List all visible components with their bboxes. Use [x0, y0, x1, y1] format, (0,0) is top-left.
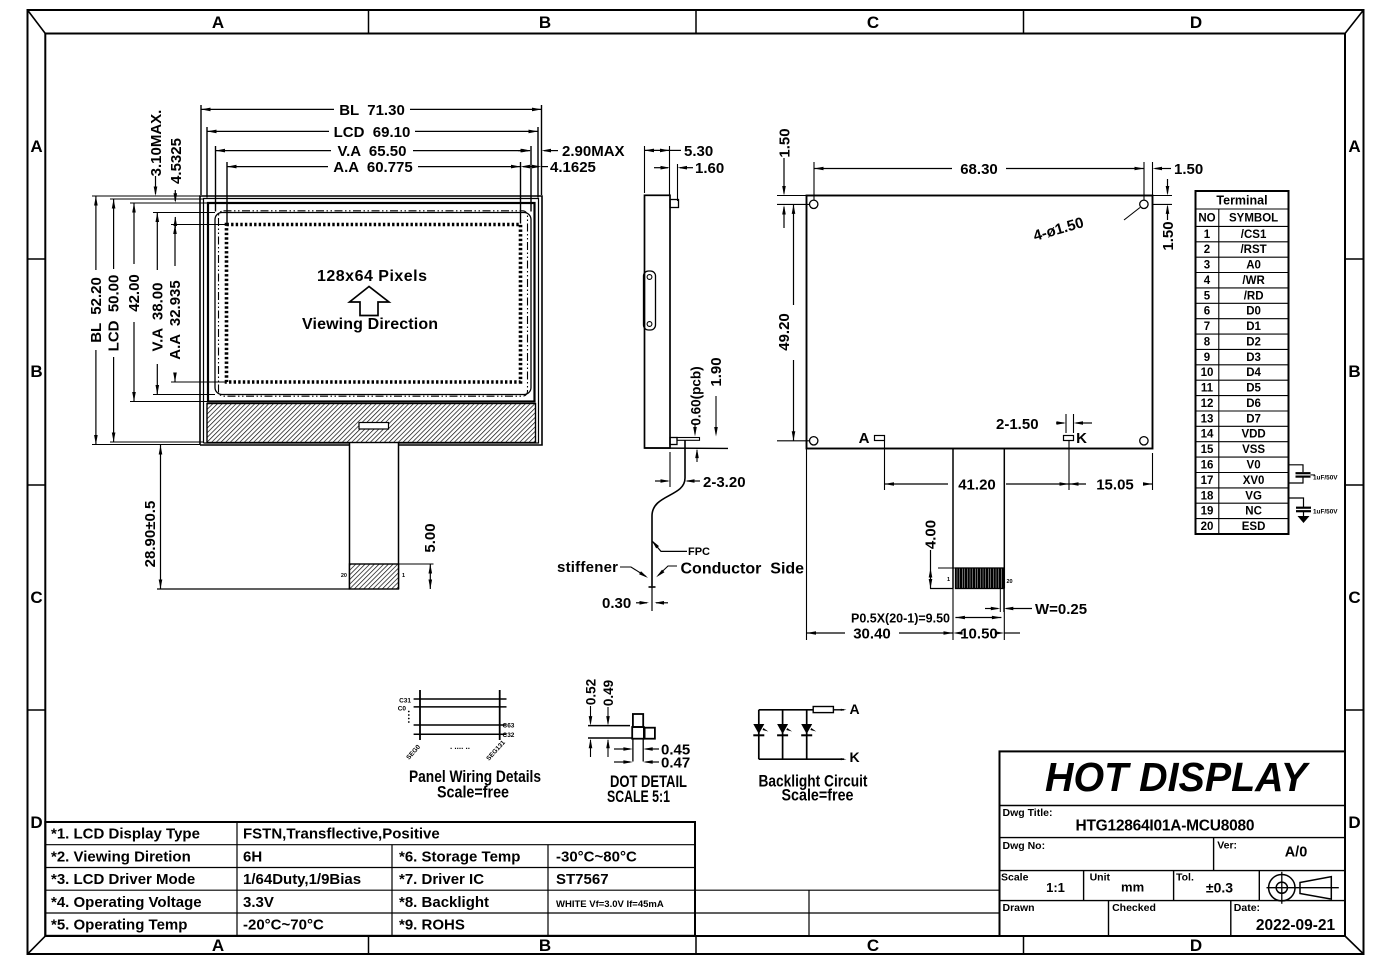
- svg-text:C31: C31: [399, 698, 411, 705]
- svg-text:Scale=free: Scale=free: [437, 784, 509, 802]
- svg-text:V.A 65.50: V.A 65.50: [338, 143, 407, 160]
- svg-text:10: 10: [1201, 367, 1214, 379]
- svg-text:LCD 69.10: LCD 69.10: [334, 124, 411, 141]
- svg-text:BL 71.30: BL 71.30: [339, 102, 405, 119]
- svg-text:ESD: ESD: [1242, 521, 1266, 533]
- svg-text:2: 2: [1204, 244, 1210, 256]
- svg-text:A: A: [850, 701, 860, 717]
- svg-text:B: B: [539, 936, 551, 955]
- svg-text:Scale: Scale: [1001, 872, 1029, 884]
- svg-text:11: 11: [1201, 383, 1214, 395]
- svg-text:±0.3: ±0.3: [1206, 880, 1233, 896]
- svg-text:1:1: 1:1: [1046, 880, 1065, 895]
- svg-text:7: 7: [1204, 321, 1210, 333]
- svg-text:19: 19: [1201, 506, 1214, 518]
- svg-text:13: 13: [1201, 413, 1214, 425]
- svg-text:0.49: 0.49: [601, 680, 616, 706]
- svg-text:FPC: FPC: [688, 546, 710, 558]
- svg-text:5: 5: [1204, 290, 1211, 302]
- svg-text:A: A: [30, 137, 42, 156]
- svg-text:41.20: 41.20: [958, 477, 996, 494]
- svg-text:D2: D2: [1246, 336, 1261, 348]
- svg-text:-30°C~80°C: -30°C~80°C: [556, 848, 637, 865]
- svg-text:Terminal: Terminal: [1216, 194, 1267, 208]
- svg-text:1.50: 1.50: [776, 128, 793, 157]
- svg-text:K: K: [1076, 430, 1087, 447]
- svg-text:Scale=free: Scale=free: [782, 787, 854, 805]
- svg-text:C: C: [30, 588, 42, 607]
- svg-text:D4: D4: [1246, 367, 1261, 379]
- svg-text:Checked: Checked: [1112, 902, 1156, 914]
- svg-text:. .... ..: . .... ..: [450, 742, 470, 751]
- svg-text:mm: mm: [1121, 880, 1144, 895]
- svg-text:stiffener: stiffener: [557, 559, 618, 576]
- svg-text:*2. Viewing Diretion: *2. Viewing Diretion: [51, 848, 191, 865]
- svg-text:C: C: [1348, 588, 1360, 607]
- svg-text:9: 9: [1204, 352, 1210, 364]
- svg-text:4.1625: 4.1625: [550, 159, 596, 176]
- svg-text:W=0.25: W=0.25: [1035, 601, 1087, 618]
- svg-text:2.90MAX: 2.90MAX: [562, 143, 625, 160]
- svg-text:D: D: [1348, 813, 1360, 832]
- svg-text:*9. ROHS: *9. ROHS: [399, 917, 465, 934]
- svg-text:C: C: [867, 13, 879, 32]
- svg-text:D7: D7: [1246, 413, 1261, 425]
- svg-text:5.30: 5.30: [684, 143, 713, 160]
- svg-text:A: A: [1348, 137, 1360, 156]
- svg-text:5.00: 5.00: [422, 523, 439, 552]
- svg-text:1.50: 1.50: [1160, 221, 1177, 250]
- svg-text:Tol.: Tol.: [1176, 872, 1194, 884]
- svg-text:Viewing Direction: Viewing Direction: [302, 316, 438, 333]
- svg-text:D: D: [1190, 936, 1202, 955]
- svg-text:NO: NO: [1198, 213, 1215, 225]
- svg-text:8: 8: [1204, 336, 1211, 348]
- svg-text:20: 20: [1007, 579, 1013, 585]
- svg-text:128x64 Pixels: 128x64 Pixels: [317, 268, 427, 285]
- svg-text:*7. Driver IC: *7. Driver IC: [399, 871, 484, 888]
- svg-text:HOT DISPLAY: HOT DISPLAY: [1045, 754, 1311, 800]
- svg-text:WHITE Vf=3.0V If=45mA: WHITE Vf=3.0V If=45mA: [556, 899, 664, 910]
- svg-text:D5: D5: [1246, 383, 1261, 395]
- svg-text:1uF/50V: 1uF/50V: [1313, 509, 1338, 516]
- svg-text:16: 16: [1201, 460, 1214, 472]
- svg-text:28.90±0.5: 28.90±0.5: [142, 501, 159, 568]
- svg-text:D1: D1: [1246, 321, 1261, 333]
- svg-text:-20°C~70°C: -20°C~70°C: [243, 917, 324, 934]
- svg-text:2-1.50: 2-1.50: [996, 416, 1039, 433]
- svg-text:A: A: [212, 13, 224, 32]
- svg-text:20: 20: [1201, 521, 1214, 533]
- svg-text:49.20: 49.20: [776, 313, 793, 351]
- svg-text:V0: V0: [1247, 460, 1261, 472]
- svg-text:1/64Duty,1/9Bias: 1/64Duty,1/9Bias: [243, 871, 361, 888]
- svg-text:1.50: 1.50: [1174, 161, 1203, 178]
- svg-text:VSS: VSS: [1242, 444, 1265, 456]
- svg-text:3.3V: 3.3V: [243, 894, 274, 911]
- svg-text:A: A: [859, 430, 870, 447]
- svg-text:30.40: 30.40: [853, 626, 891, 643]
- svg-text:C: C: [867, 936, 879, 955]
- svg-text:/WR: /WR: [1242, 275, 1265, 287]
- svg-text:15: 15: [1201, 444, 1214, 456]
- svg-text:A/0: A/0: [1285, 845, 1308, 861]
- svg-text:0.52: 0.52: [584, 679, 599, 705]
- svg-text:B: B: [539, 13, 551, 32]
- svg-text:VDD: VDD: [1241, 429, 1265, 441]
- svg-text:SYMBOL: SYMBOL: [1229, 213, 1278, 225]
- svg-text:Date:: Date:: [1234, 902, 1260, 914]
- svg-text:Dwg Title:: Dwg Title:: [1003, 807, 1053, 819]
- svg-text:1.60: 1.60: [695, 160, 724, 177]
- svg-text:15.05: 15.05: [1096, 477, 1134, 494]
- svg-text:10.50: 10.50: [960, 626, 998, 643]
- svg-text:NC: NC: [1245, 506, 1262, 518]
- svg-text:*8. Backlight: *8. Backlight: [399, 894, 489, 911]
- svg-text:C0: C0: [398, 706, 407, 713]
- svg-text:*1. LCD Display Type: *1. LCD Display Type: [51, 826, 200, 843]
- svg-text:FSTN,Transflective,Positive: FSTN,Transflective,Positive: [243, 826, 440, 843]
- svg-text:12: 12: [1201, 398, 1214, 410]
- svg-text:V.A 38.00: V.A 38.00: [149, 283, 166, 352]
- svg-text:P0.5X(20-1)=9.50: P0.5X(20-1)=9.50: [851, 612, 950, 626]
- svg-text:Conductor Side: Conductor Side: [681, 561, 805, 578]
- svg-text:K: K: [850, 749, 860, 765]
- svg-text:3: 3: [1204, 260, 1210, 272]
- svg-text:17: 17: [1201, 475, 1214, 487]
- svg-text:Dwg No:: Dwg No:: [1003, 840, 1046, 852]
- svg-text:D: D: [1190, 13, 1202, 32]
- svg-text:HTG12864I01A-MCU8080: HTG12864I01A-MCU8080: [1076, 818, 1255, 835]
- svg-text:3.10MAX.: 3.10MAX.: [148, 110, 165, 177]
- svg-text:2022-09-21: 2022-09-21: [1256, 917, 1336, 934]
- svg-text:42.00: 42.00: [126, 274, 143, 312]
- svg-text:1uF/50V: 1uF/50V: [1313, 475, 1338, 482]
- svg-text:0.47: 0.47: [661, 755, 690, 772]
- svg-text:1: 1: [402, 573, 405, 579]
- svg-text:A0: A0: [1246, 260, 1261, 272]
- svg-text:20: 20: [341, 573, 347, 579]
- svg-text:D: D: [30, 813, 42, 832]
- svg-text:18: 18: [1201, 490, 1214, 502]
- svg-text:C63: C63: [503, 723, 515, 730]
- svg-text:0.60(pcb): 0.60(pcb): [689, 366, 704, 425]
- svg-text:1.90: 1.90: [708, 357, 725, 386]
- svg-text:/RST: /RST: [1240, 244, 1266, 256]
- svg-text:Unit: Unit: [1090, 872, 1111, 884]
- svg-text:4.5325: 4.5325: [168, 138, 185, 184]
- svg-text:68.30: 68.30: [960, 161, 998, 178]
- svg-text:*6. Storage Temp: *6. Storage Temp: [399, 848, 520, 865]
- svg-text:*3. LCD Driver Mode: *3. LCD Driver Mode: [51, 871, 195, 888]
- svg-text:Ver:: Ver:: [1217, 840, 1237, 852]
- svg-text:/CS1: /CS1: [1241, 229, 1267, 241]
- svg-text:VG: VG: [1245, 490, 1262, 502]
- svg-text:1: 1: [947, 577, 950, 583]
- svg-text:BL 52.20: BL 52.20: [88, 277, 105, 343]
- svg-text:A.A 60.775: A.A 60.775: [333, 159, 413, 176]
- svg-text:B: B: [30, 362, 42, 381]
- svg-text:SCALE 5:1: SCALE 5:1: [607, 788, 670, 806]
- svg-text:B: B: [1348, 362, 1360, 381]
- svg-text:*4. Operating Voltage: *4. Operating Voltage: [51, 894, 202, 911]
- svg-text:0.30: 0.30: [602, 595, 631, 612]
- svg-text:ST7567: ST7567: [556, 871, 609, 888]
- svg-text:6: 6: [1204, 306, 1210, 318]
- svg-text:4.00: 4.00: [923, 520, 940, 549]
- svg-text:Drawn: Drawn: [1003, 902, 1035, 914]
- svg-text:*5. Operating Temp: *5. Operating Temp: [51, 917, 187, 934]
- svg-text:D6: D6: [1246, 398, 1261, 410]
- svg-text:14: 14: [1201, 429, 1214, 441]
- svg-text:D0: D0: [1246, 306, 1261, 318]
- svg-text:LCD 50.00: LCD 50.00: [106, 275, 123, 352]
- svg-text:/RD: /RD: [1244, 290, 1264, 302]
- svg-text:1: 1: [1204, 229, 1211, 241]
- svg-text:4: 4: [1204, 275, 1211, 287]
- svg-text:A: A: [212, 936, 224, 955]
- svg-text:C32: C32: [503, 732, 515, 739]
- svg-text:A.A 32.935: A.A 32.935: [167, 280, 184, 360]
- svg-text:2-3.20: 2-3.20: [703, 474, 746, 491]
- svg-text:D3: D3: [1246, 352, 1261, 364]
- svg-text:XV0: XV0: [1243, 475, 1265, 487]
- svg-text:6H: 6H: [243, 848, 262, 865]
